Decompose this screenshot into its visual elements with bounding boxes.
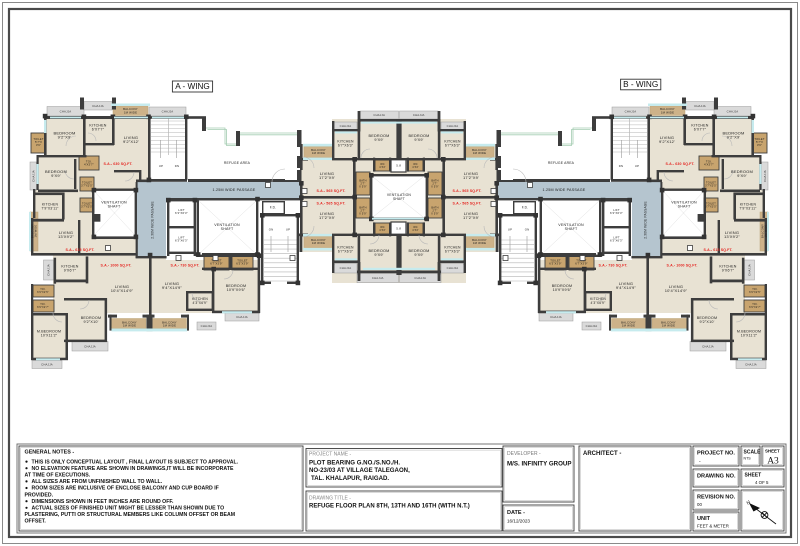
svg-text:TOILET6'3"X3'9": TOILET6'3"X3'9" xyxy=(236,258,249,265)
svg-text:BALCONY1M WIDE: BALCONY1M WIDE xyxy=(122,320,137,327)
svg-text:BEDROOM10'9"X9'6": BEDROOM10'9"X9'6" xyxy=(226,284,246,292)
svg-text:CHAJJA: CHAJJA xyxy=(413,113,425,117)
svg-text:16/12/2023: 16/12/2023 xyxy=(507,519,530,524)
svg-text:UP: UP xyxy=(508,227,512,231)
svg-text:REFUGE AREA: REFUGE AREA xyxy=(224,161,251,165)
svg-text:TOILET3'7"X3'5": TOILET3'7"X3'5" xyxy=(705,202,717,208)
svg-text:KITCHEN6'X7'7": KITCHEN6'X7'7" xyxy=(691,123,708,131)
svg-text:1.25M WIDE PASSAGE: 1.25M WIDE PASSAGE xyxy=(543,188,586,192)
svg-text:CHAJJA: CHAJJA xyxy=(373,113,385,117)
svg-text:CHAJJA: CHAJJA xyxy=(550,315,562,319)
svg-text:F.D.: F.D. xyxy=(522,205,528,209)
svg-text:S.A.- 615 SQ.FT.: S.A.- 615 SQ.FT. xyxy=(704,248,733,252)
svg-text:REVISION NO.: REVISION NO. xyxy=(697,495,736,501)
svg-text:KITCHEN9'X6'7": KITCHEN9'X6'7" xyxy=(719,264,736,272)
svg-text:LIVING9'2"X12': LIVING9'2"X12' xyxy=(123,135,139,144)
svg-text:CHAJJA: CHAJJA xyxy=(447,266,459,270)
svg-text:DN: DN xyxy=(619,164,623,168)
svg-text:BALCONY1M WIDE: BALCONY1M WIDE xyxy=(311,238,326,245)
svg-text:DEVELOPER -: DEVELOPER - xyxy=(507,451,541,457)
svg-text:S.A.- 565 SQ.FT.: S.A.- 565 SQ.FT. xyxy=(453,201,482,205)
svg-text:UNIT: UNIT xyxy=(697,516,711,522)
svg-text:LIVING17'2"X9': LIVING17'2"X9' xyxy=(463,171,479,180)
svg-text:DATE -: DATE - xyxy=(507,510,525,516)
svg-text:THIS IS ONLY CONCEPTUAL LAYOUT: THIS IS ONLY CONCEPTUAL LAYOUT , FINAL L… xyxy=(32,459,239,465)
svg-text:BALCONY1M WIDE: BALCONY1M WIDE xyxy=(162,320,177,327)
svg-text:M/S. INFINITY GROUP: M/S. INFINITY GROUP xyxy=(507,461,572,468)
svg-text:A - WING: A - WING xyxy=(175,82,210,91)
svg-text:CHAJJA: CHAJJA xyxy=(694,103,706,107)
svg-text:2.30M WIDE PASSAGE: 2.30M WIDE PASSAGE xyxy=(150,201,154,239)
svg-text:UP: UP xyxy=(286,227,290,231)
svg-text:PROJECT NAME -: PROJECT NAME - xyxy=(309,452,351,458)
svg-text:LIVING9'2"X12': LIVING9'2"X12' xyxy=(659,135,675,144)
svg-text:TOILET3'7"X3'5": TOILET3'7"X3'5" xyxy=(81,202,93,208)
svg-text:BEDROOM9'2"X10': BEDROOM9'2"X10' xyxy=(697,316,717,324)
svg-text:BALCONY1M WIDE: BALCONY1M WIDE xyxy=(311,148,326,155)
svg-text:5.8: 5.8 xyxy=(396,226,401,230)
svg-text:GENERAL NOTES -: GENERAL NOTES - xyxy=(25,450,75,456)
svg-text:CHAJJA: CHAJJA xyxy=(414,276,426,280)
svg-text:KITCHEN6'7"X6'3": KITCHEN6'7"X6'3" xyxy=(444,245,461,253)
svg-text:S.A.- 630 SQ.FT.: S.A.- 630 SQ.FT. xyxy=(104,162,133,166)
svg-text:DRAWING NO.: DRAWING NO. xyxy=(697,474,736,480)
svg-text:CHAJJA: CHAJJA xyxy=(340,266,352,270)
svg-text:LIVING17'2"X9': LIVING17'2"X9' xyxy=(319,171,335,180)
svg-text:BALCONY1M WIDE: BALCONY1M WIDE xyxy=(661,320,676,327)
svg-text:DRAWING TITLE -: DRAWING TITLE - xyxy=(309,496,351,502)
svg-text:BALCONY1M WIDE: BALCONY1M WIDE xyxy=(472,238,487,245)
svg-text:CHAJJA: CHAJJA xyxy=(236,315,248,319)
svg-text:KITCHEN6'7"X6'3": KITCHEN6'7"X6'3" xyxy=(337,139,354,147)
svg-text:TOILET3'7"X3'5": TOILET3'7"X3'5" xyxy=(81,181,93,187)
svg-text:F.D.: F.D. xyxy=(270,205,276,209)
svg-text:BEDROOM10'9"X9'6": BEDROOM10'9"X9'6" xyxy=(552,284,572,292)
svg-text:KITCHEN4'3"X6'9": KITCHEN4'3"X6'9" xyxy=(192,297,208,305)
svg-text:KITCHEN6'X7'7": KITCHEN6'X7'7" xyxy=(89,123,106,131)
svg-text:NTS: NTS xyxy=(744,457,752,461)
svg-text:CHAJJA: CHAJJA xyxy=(92,103,104,107)
svg-text:ARCHITECT -: ARCHITECT - xyxy=(583,451,621,457)
svg-text:BEDROOM9'2"X10': BEDROOM9'2"X10' xyxy=(81,316,101,324)
svg-text:LIVING13'X9'2": LIVING13'X9'2" xyxy=(58,230,74,239)
svg-text:S.A.- 565 SQ.FT.: S.A.- 565 SQ.FT. xyxy=(317,201,346,205)
svg-text:CHAJJA: CHAJJA xyxy=(625,109,637,113)
svg-text:A3: A3 xyxy=(767,457,779,467)
svg-text:KITCHEN4'3"X6'9": KITCHEN4'3"X6'9" xyxy=(590,297,606,305)
svg-text:S.A.- 730 SQ.FT.: S.A.- 730 SQ.FT. xyxy=(171,263,200,267)
svg-text:S.A.- 730 SQ.FT.: S.A.- 730 SQ.FT. xyxy=(599,263,628,267)
svg-text:OFFSET.: OFFSET. xyxy=(25,519,47,525)
svg-text:UP: UP xyxy=(635,164,639,168)
svg-text:ALL SIZES ARE FROM UNFINISHED: ALL SIZES ARE FROM UNFINISHED WALL TO WA… xyxy=(32,479,163,485)
svg-text:BALCONY1M WIDE: BALCONY1M WIDE xyxy=(30,224,37,238)
svg-text:CHAJJA: CHAJJA xyxy=(762,170,766,182)
svg-text:AT TIME OF EXECUTIONS.: AT TIME OF EXECUTIONS. xyxy=(25,473,91,479)
svg-text:S.A.- 1000 SQ.FT.: S.A.- 1000 SQ.FT. xyxy=(100,263,131,267)
svg-text:PLASTERING, PUTTI OR STRUCTURA: PLASTERING, PUTTI OR STRUCTURAL MEMBERS … xyxy=(25,512,236,518)
svg-text:KITCHEN7'9"X3'11": KITCHEN7'9"X3'11" xyxy=(739,202,757,210)
svg-text:BALCONY1M WIDE: BALCONY1M WIDE xyxy=(760,224,767,238)
svg-text:ACTUAL SIZES OF FINISHED UNIT: ACTUAL SIZES OF FINISHED UNIT MIGHT BE L… xyxy=(32,506,225,512)
svg-text:CHAJJA: CHAJJA xyxy=(586,324,598,328)
svg-text:BALCONY1M WIDE: BALCONY1M WIDE xyxy=(123,107,138,114)
svg-text:CHAJJA: CHAJJA xyxy=(84,344,96,348)
svg-text:CHAJJA: CHAJJA xyxy=(31,170,35,182)
svg-text:ON: ON xyxy=(525,227,530,231)
svg-text:PLOT BEARING G.NO./S.NO./H.: PLOT BEARING G.NO./S.NO./H. xyxy=(309,460,400,467)
svg-text:KITCHEN7'9"X3'11": KITCHEN7'9"X3'11" xyxy=(41,202,59,210)
svg-text:PROJECT NO.: PROJECT NO. xyxy=(697,451,735,457)
svg-text:PROVIDED.: PROVIDED. xyxy=(25,492,54,498)
svg-text:CHAJJA: CHAJJA xyxy=(46,264,50,276)
svg-text:KITCHEN6'7"X6'3": KITCHEN6'7"X6'3" xyxy=(337,245,354,253)
svg-text:CHAJJA: CHAJJA xyxy=(60,109,72,113)
svg-text:DIMENSIONS SHOWN IN FEET INCHE: DIMENSIONS SHOWN IN FEET INCHES ARE ROUN… xyxy=(32,499,174,505)
svg-text:CHAJJA: CHAJJA xyxy=(727,109,739,113)
svg-text:S.A.- 615 SQ.FT.: S.A.- 615 SQ.FT. xyxy=(66,248,95,252)
svg-text:5.8: 5.8 xyxy=(396,163,401,167)
svg-text:CHAJJA: CHAJJA xyxy=(447,124,459,128)
svg-text:BALCONY1M WIDE: BALCONY1M WIDE xyxy=(621,320,636,327)
svg-text:NO-23/03 AT VILLAGE TALEGAON,: NO-23/03 AT VILLAGE TALEGAON, xyxy=(309,467,410,474)
svg-text:LIVING17'2"X9': LIVING17'2"X9' xyxy=(463,211,479,220)
svg-text:ON: ON xyxy=(269,227,274,231)
svg-text:TOILET6'3"X3'9": TOILET6'3"X3'9" xyxy=(549,258,562,265)
svg-text:S.A.- 1000 SQ.FT.: S.A.- 1000 SQ.FT. xyxy=(666,263,697,267)
svg-text:NO ELEVATION FEATURE ARE SHOWN: NO ELEVATION FEATURE ARE SHOWN IN DRAWIN… xyxy=(32,466,234,472)
svg-text:UP: UP xyxy=(159,164,163,168)
svg-text:ROOM SIZES ARE INCLUSIVE OF EN: ROOM SIZES ARE INCLUSIVE OF ENCLOSE BALC… xyxy=(32,486,219,492)
svg-text:CHAJJA: CHAJJA xyxy=(745,362,757,366)
svg-text:BALCONY1M WIDE: BALCONY1M WIDE xyxy=(472,148,487,155)
svg-text:SCALE: SCALE xyxy=(744,450,762,456)
svg-text:TOILET3'7"X3'5": TOILET3'7"X3'5" xyxy=(705,181,717,187)
svg-text:S.A.- 565 SQ.FT.: S.A.- 565 SQ.FT. xyxy=(453,189,482,193)
svg-text:FEET & METER: FEET & METER xyxy=(697,524,729,529)
svg-text:CHAJJA: CHAJJA xyxy=(162,109,174,113)
svg-text:B - WING: B - WING xyxy=(623,80,658,89)
svg-text:CHAJJA: CHAJJA xyxy=(372,276,384,280)
svg-text:REFUGE AREA: REFUGE AREA xyxy=(548,161,575,165)
svg-text:SHEET: SHEET xyxy=(765,449,780,454)
svg-text:BALCONY1M WIDE: BALCONY1M WIDE xyxy=(660,107,675,114)
svg-text:KITCHEN6'7"X6'3": KITCHEN6'7"X6'3" xyxy=(444,139,461,147)
svg-text:KITCHEN9'X6'7": KITCHEN9'X6'7" xyxy=(61,264,78,272)
svg-text:S.A.- 565 SQ.FT.: S.A.- 565 SQ.FT. xyxy=(317,189,346,193)
svg-text:CHAJJA: CHAJJA xyxy=(201,324,213,328)
svg-text:DN: DN xyxy=(175,164,179,168)
svg-text:CHAJJA: CHAJJA xyxy=(702,344,714,348)
svg-text:00: 00 xyxy=(697,502,702,507)
svg-text:LIVING17'2"X9': LIVING17'2"X9' xyxy=(319,211,335,220)
svg-text:CHAJJA: CHAJJA xyxy=(41,362,53,366)
svg-text:REFUGE FLOOR PLAN 8TH, 13TH AN: REFUGE FLOOR PLAN 8TH, 13TH AND 16TH (WI… xyxy=(309,504,470,510)
svg-text:TAL. KHALAPUR, RAIGAD.: TAL. KHALAPUR, RAIGAD. xyxy=(311,475,389,482)
svg-text:4 OF 5: 4 OF 5 xyxy=(755,480,769,485)
svg-text:CHAJJA: CHAJJA xyxy=(747,264,751,276)
svg-text:S.A.- 630 SQ.FT.: S.A.- 630 SQ.FT. xyxy=(666,162,695,166)
svg-text:CHAJJA: CHAJJA xyxy=(340,124,352,128)
svg-text:SHEET: SHEET xyxy=(745,473,762,479)
svg-text:2.30M WIDE PASSAGE: 2.30M WIDE PASSAGE xyxy=(643,201,647,239)
svg-text:LIVING13'X9'2": LIVING13'X9'2" xyxy=(724,230,740,239)
svg-text:1.25M WIDE PASSAGE: 1.25M WIDE PASSAGE xyxy=(213,188,256,192)
